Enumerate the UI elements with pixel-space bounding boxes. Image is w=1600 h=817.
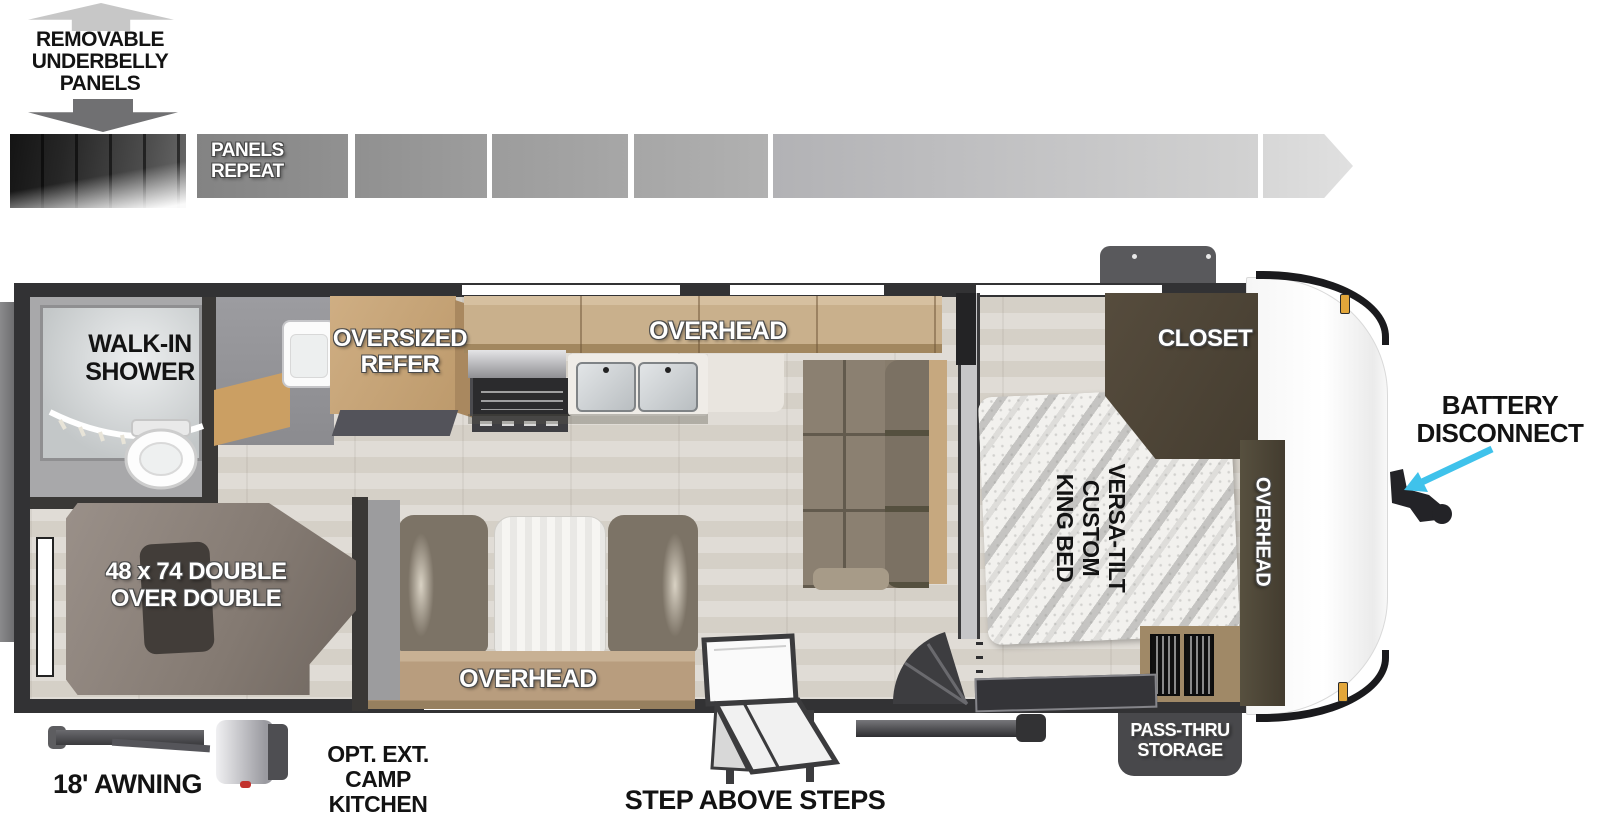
battery-arrow-line (1422, 449, 1492, 482)
hitch-knob (1432, 504, 1452, 524)
rv-floorplan-diagram: REMOVABLEUNDERBELLYPANELS PANELSREPEAT W… (0, 0, 1600, 817)
door-swing (893, 632, 967, 704)
diagram-overlay (0, 0, 1600, 817)
toilet-seat (140, 443, 182, 475)
